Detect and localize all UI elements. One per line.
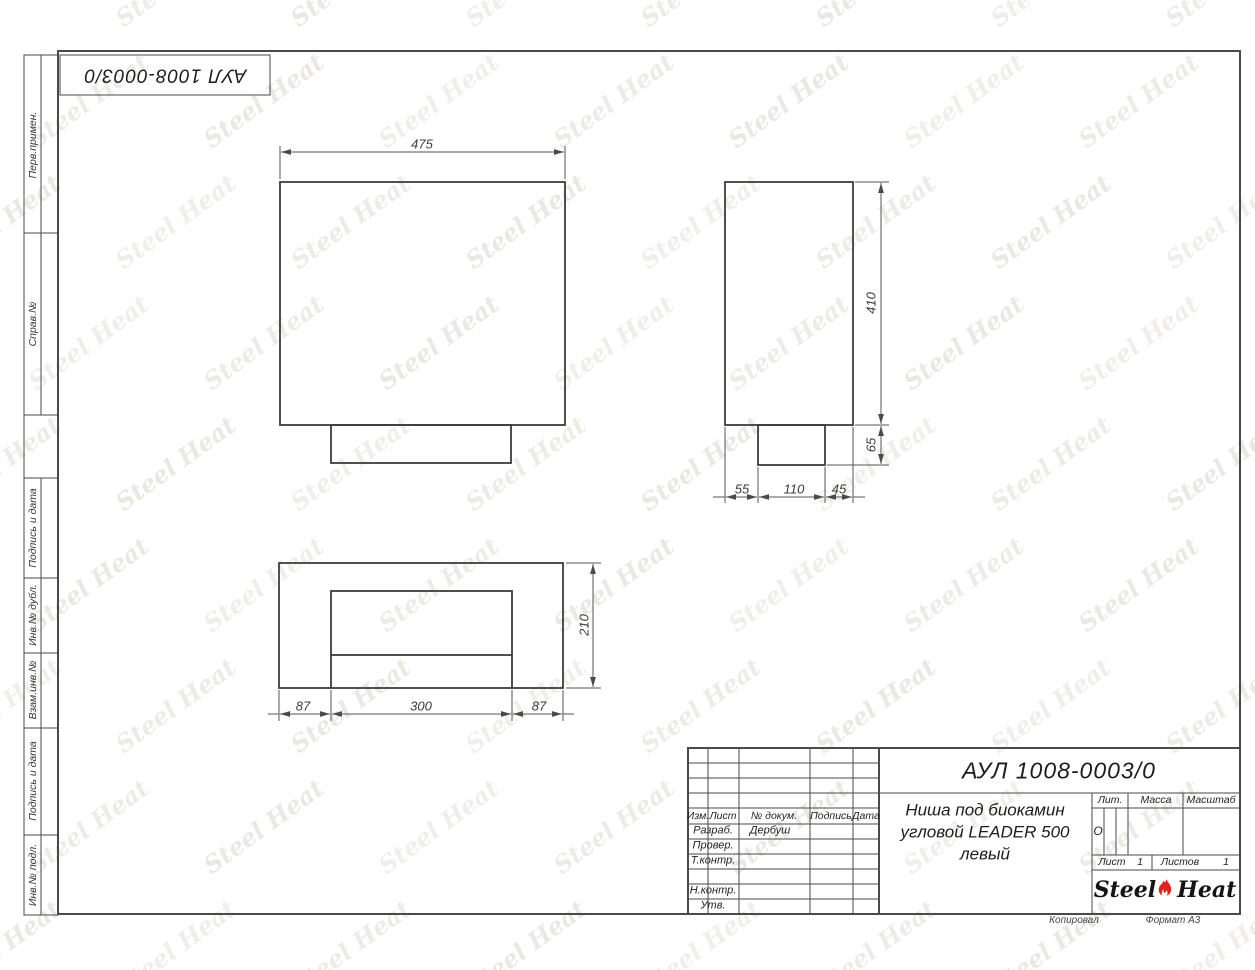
dim-top-depth: 210 — [578, 614, 591, 636]
dim-side-seg-mid: 110 — [784, 483, 805, 496]
tb-lit-label: Лит. — [1098, 795, 1123, 806]
tb-row-utv: Утв. — [701, 901, 726, 912]
tb-name-line-2: угловой LEADER 500 — [901, 824, 1070, 841]
logo-heat-text: Heat — [1177, 877, 1236, 903]
sidebar-label-inv-podl: Инв.№ подл. — [28, 844, 39, 906]
dim-top-seg-mid: 300 — [410, 700, 432, 713]
tb-header-podpis: Подпись — [810, 811, 852, 822]
dim-side-seg-right: 45 — [832, 483, 846, 496]
steel-heat-logo: Steel Heat — [1094, 877, 1237, 903]
dim-side-seg-left: 55 — [735, 483, 749, 496]
sidebar-label-perv-primen: Перв.примен. — [28, 112, 39, 179]
tb-row-tkontr: Т.контр. — [691, 856, 735, 867]
tb-list-value: 1 — [1137, 857, 1143, 868]
logo-steel-text: Steel — [1094, 877, 1156, 903]
sidebar-label-vzam-inv: Взам.инв.№ — [28, 660, 39, 719]
dim-side-height: 410 — [865, 292, 878, 314]
tb-list-label: Лист — [1098, 857, 1125, 868]
tb-value-razrab-name: Дербуш — [750, 826, 791, 837]
tb-header-list: Лист — [709, 811, 736, 822]
part-views — [279, 182, 853, 688]
tb-massa-label: Масса — [1140, 795, 1171, 806]
flame-icon — [1158, 879, 1175, 900]
dim-side-tab-height: 65 — [865, 438, 878, 452]
tb-listov-label: Листов — [1161, 857, 1199, 868]
sidebar-label-sprav-no: Справ.№ — [28, 302, 39, 347]
tb-name-line-3: левый — [960, 846, 1010, 863]
tb-header-izm: Изм. — [687, 811, 709, 822]
drawing-sheet: Steel HeatSteel HeatSteel HeatSteel Heat… — [0, 0, 1255, 970]
tb-row-nkontr: Н.контр. — [690, 886, 737, 897]
sidebar-label-inv-dubl: Инв.№ дубл. — [28, 584, 39, 646]
dim-top-seg-left: 87 — [296, 700, 310, 713]
rotated-designation-stamp: АУЛ 1008-0003/0 — [84, 66, 247, 85]
footer-format-label: Формат А3 — [1146, 916, 1201, 926]
tb-name-line-1: Ниша под биокамин — [905, 802, 1064, 819]
front-view-body — [280, 182, 565, 425]
top-view-body — [279, 563, 563, 688]
tb-doc-number: АУЛ 1008-0003/0 — [962, 760, 1156, 783]
footer-copied-label: Копировал — [1049, 916, 1099, 926]
top-view-opening — [331, 591, 512, 655]
sidebar-label-podpis-data-2: Подпись и дата — [28, 741, 39, 820]
side-view-tab — [758, 425, 825, 465]
tb-header-dokum: № докум. — [751, 811, 797, 822]
sheet-frame-grid — [24, 51, 1240, 915]
tb-row-prover: Провер. — [693, 841, 734, 852]
dim-front-width: 475 — [411, 138, 433, 151]
tb-header-data: Дата — [852, 811, 880, 822]
sidebar-label-podpis-data-1: Подпись и дата — [28, 488, 39, 567]
tb-lit-value: О — [1093, 825, 1102, 837]
tb-masshtab-label: Масштаб — [1186, 795, 1235, 806]
tb-listov-value: 1 — [1223, 857, 1229, 868]
tb-row-razrab: Разраб. — [693, 826, 733, 837]
front-view-tab — [331, 425, 511, 463]
dim-top-seg-right: 87 — [532, 700, 546, 713]
side-view-body — [725, 182, 853, 425]
